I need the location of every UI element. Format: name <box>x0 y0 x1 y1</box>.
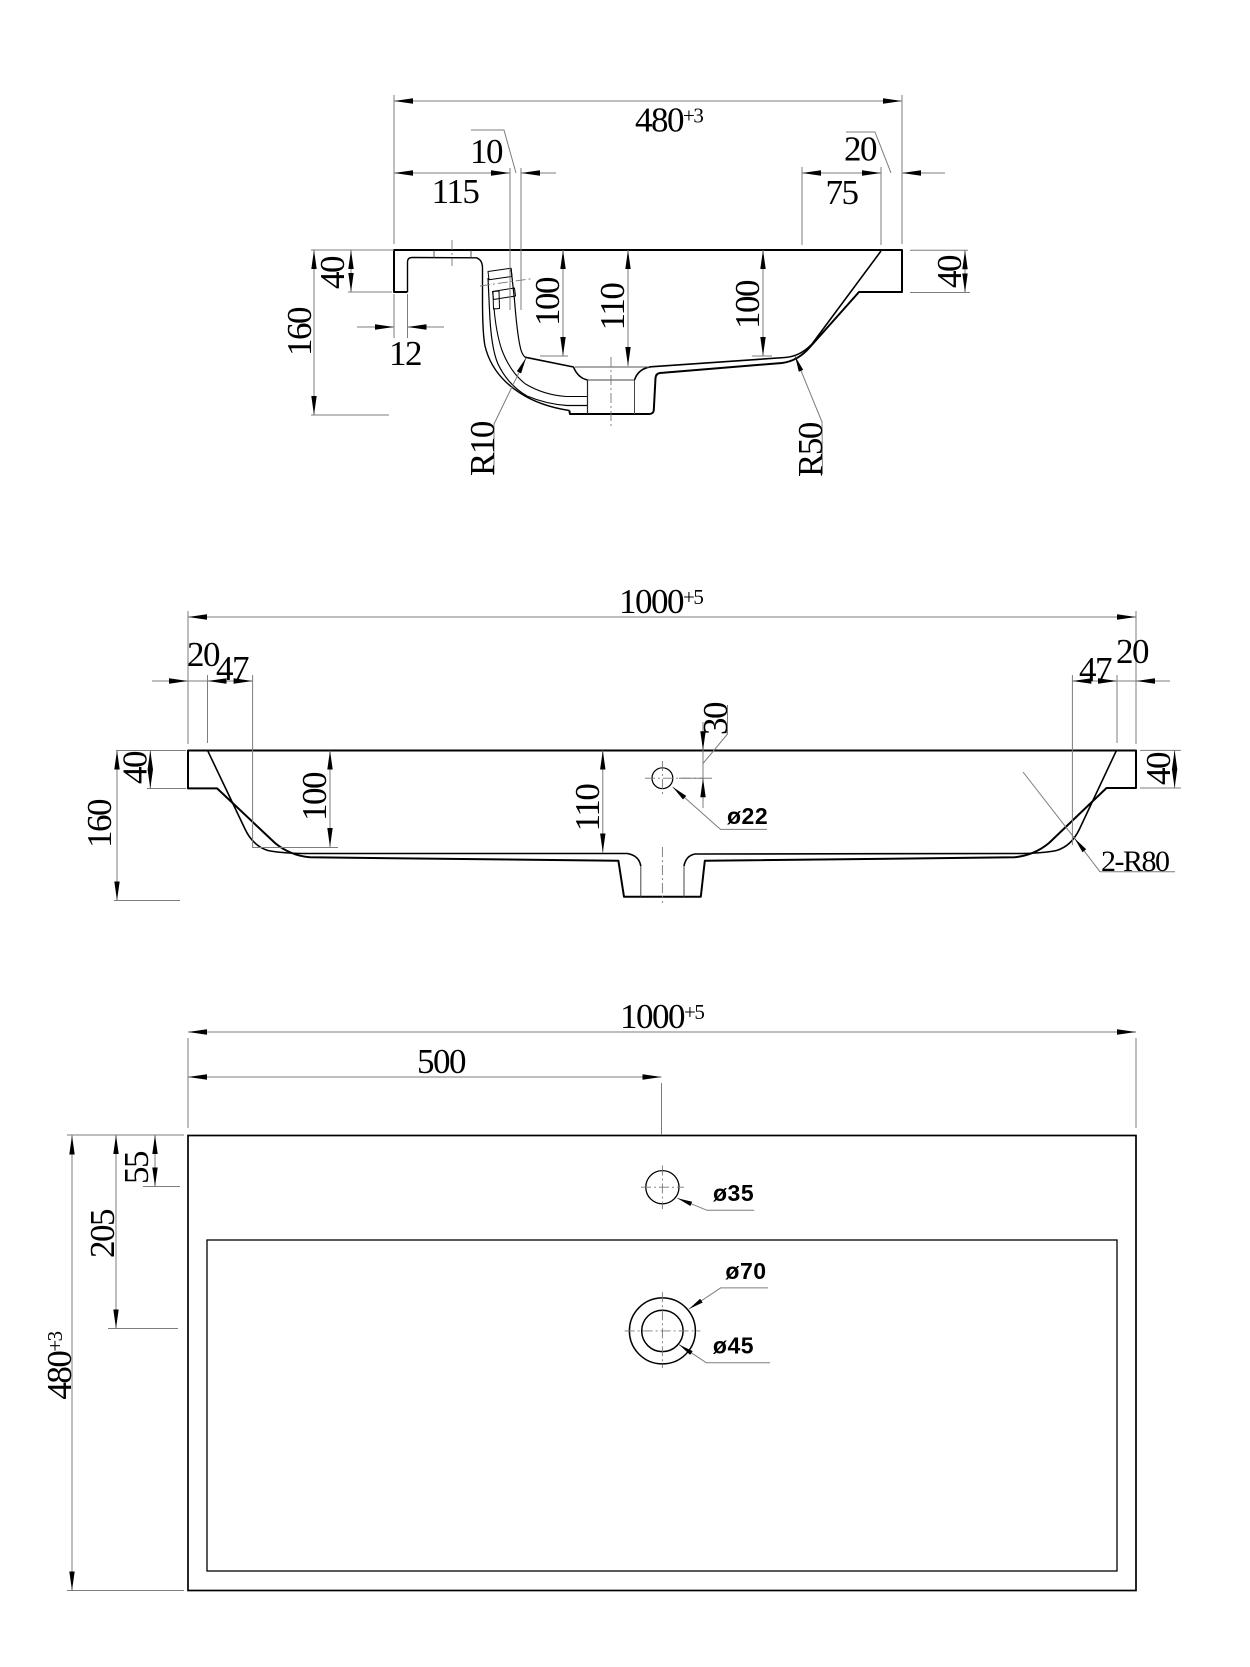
svg-text:ø22: ø22 <box>727 803 768 829</box>
svg-text:40: 40 <box>930 255 969 288</box>
svg-text:20: 20 <box>1116 632 1149 671</box>
svg-text:20: 20 <box>844 130 877 169</box>
svg-text:47: 47 <box>1079 650 1112 689</box>
svg-text:30: 30 <box>696 702 735 735</box>
svg-text:115: 115 <box>432 172 480 211</box>
svg-text:500: 500 <box>417 1042 466 1081</box>
svg-text:R10: R10 <box>463 421 502 476</box>
svg-text:40: 40 <box>313 256 352 289</box>
svg-text:2-R80: 2-R80 <box>1101 845 1169 878</box>
svg-text:ø45: ø45 <box>713 1333 754 1359</box>
svg-text:10: 10 <box>470 132 503 171</box>
svg-text:100: 100 <box>295 772 334 821</box>
svg-text:ø35: ø35 <box>713 1180 754 1206</box>
svg-text:75: 75 <box>826 173 859 212</box>
svg-text:100: 100 <box>728 280 767 329</box>
svg-text:40: 40 <box>116 751 155 784</box>
svg-text:55: 55 <box>117 1151 156 1184</box>
svg-text:R50: R50 <box>791 422 830 477</box>
svg-text:205: 205 <box>83 1209 122 1258</box>
svg-text:160: 160 <box>280 307 319 356</box>
svg-text:110: 110 <box>568 784 607 832</box>
svg-text:110: 110 <box>593 283 632 331</box>
svg-text:100: 100 <box>528 277 567 326</box>
svg-text:40: 40 <box>1139 752 1178 785</box>
svg-text:47: 47 <box>216 649 249 688</box>
svg-text:160: 160 <box>80 799 119 848</box>
svg-text:ø70: ø70 <box>725 1258 766 1284</box>
svg-text:12: 12 <box>389 334 421 373</box>
